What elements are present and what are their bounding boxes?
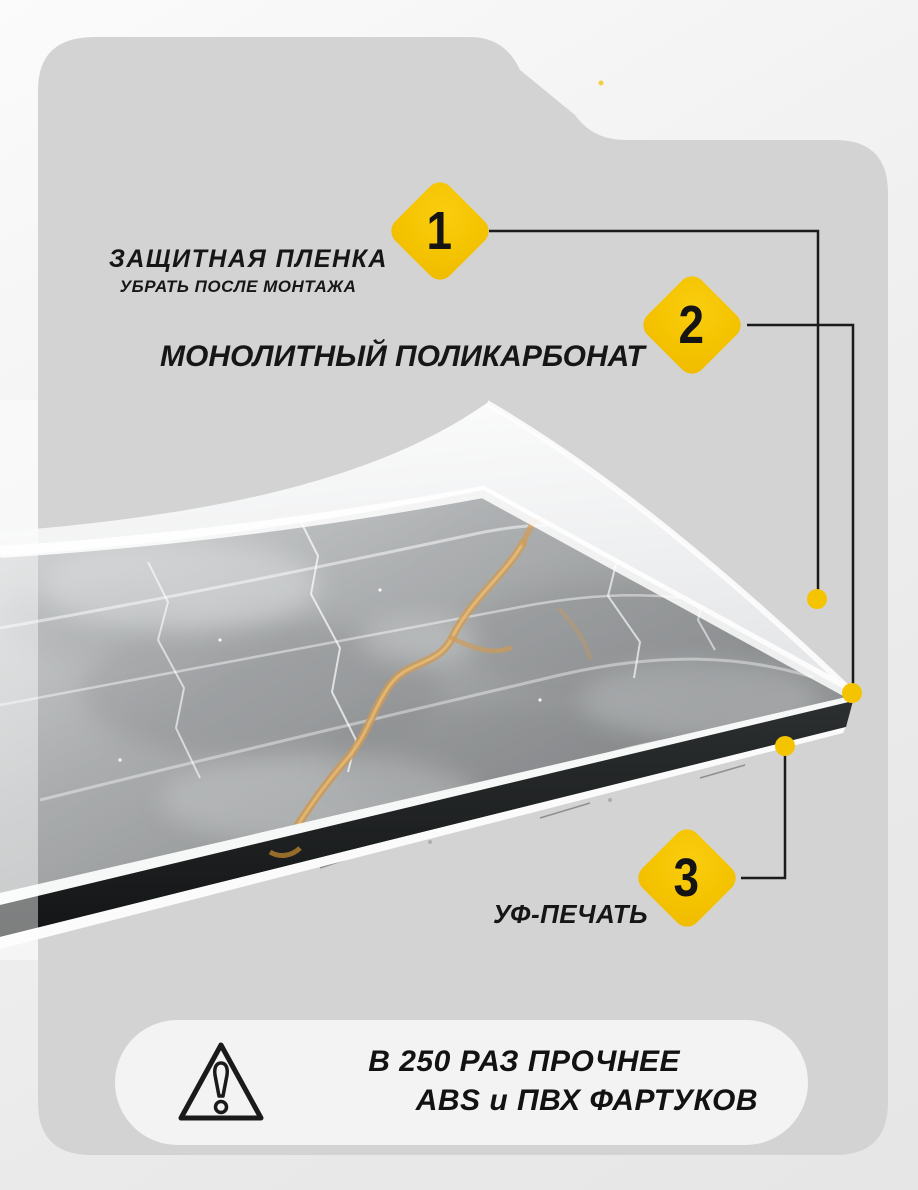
callout-number-3: 3 (674, 851, 700, 905)
footnote-pill: В 250 РАЗ ПРОЧНЕЕ ABS и ПВХ ФАРТУКОВ (115, 1020, 808, 1145)
callout-dot-1 (807, 589, 827, 609)
stray-speck (599, 81, 604, 86)
label-uv-print: УФ-ПЕЧАТЬ (493, 901, 648, 928)
footnote-line-1: В 250 РАЗ ПРОЧНЕЕ (368, 1045, 680, 1079)
label-protective-film: ЗАЩИТНАЯ ПЛЕНКА (109, 246, 388, 272)
label-polycarbonate: МОНОЛИТНЫЙ ПОЛИКАРБОНАТ (160, 341, 645, 373)
label-protective-film-note: УБРАТЬ ПОСЛЕ МОНТАЖА (100, 278, 376, 296)
callout-number-2: 2 (679, 298, 705, 352)
callout-dot-2 (842, 683, 862, 703)
warning-triangle-icon (173, 1038, 269, 1130)
offcard-wash (0, 400, 38, 960)
callout-dot-3 (775, 736, 795, 756)
callout-number-1: 1 (427, 204, 453, 258)
product-infographic: { "colors": { "background": "#f2f2f2", "… (0, 0, 918, 1190)
footnote-line-2: ABS и ПВХ ФАРТУКОВ (416, 1084, 758, 1118)
scene-illustration (0, 0, 918, 1190)
